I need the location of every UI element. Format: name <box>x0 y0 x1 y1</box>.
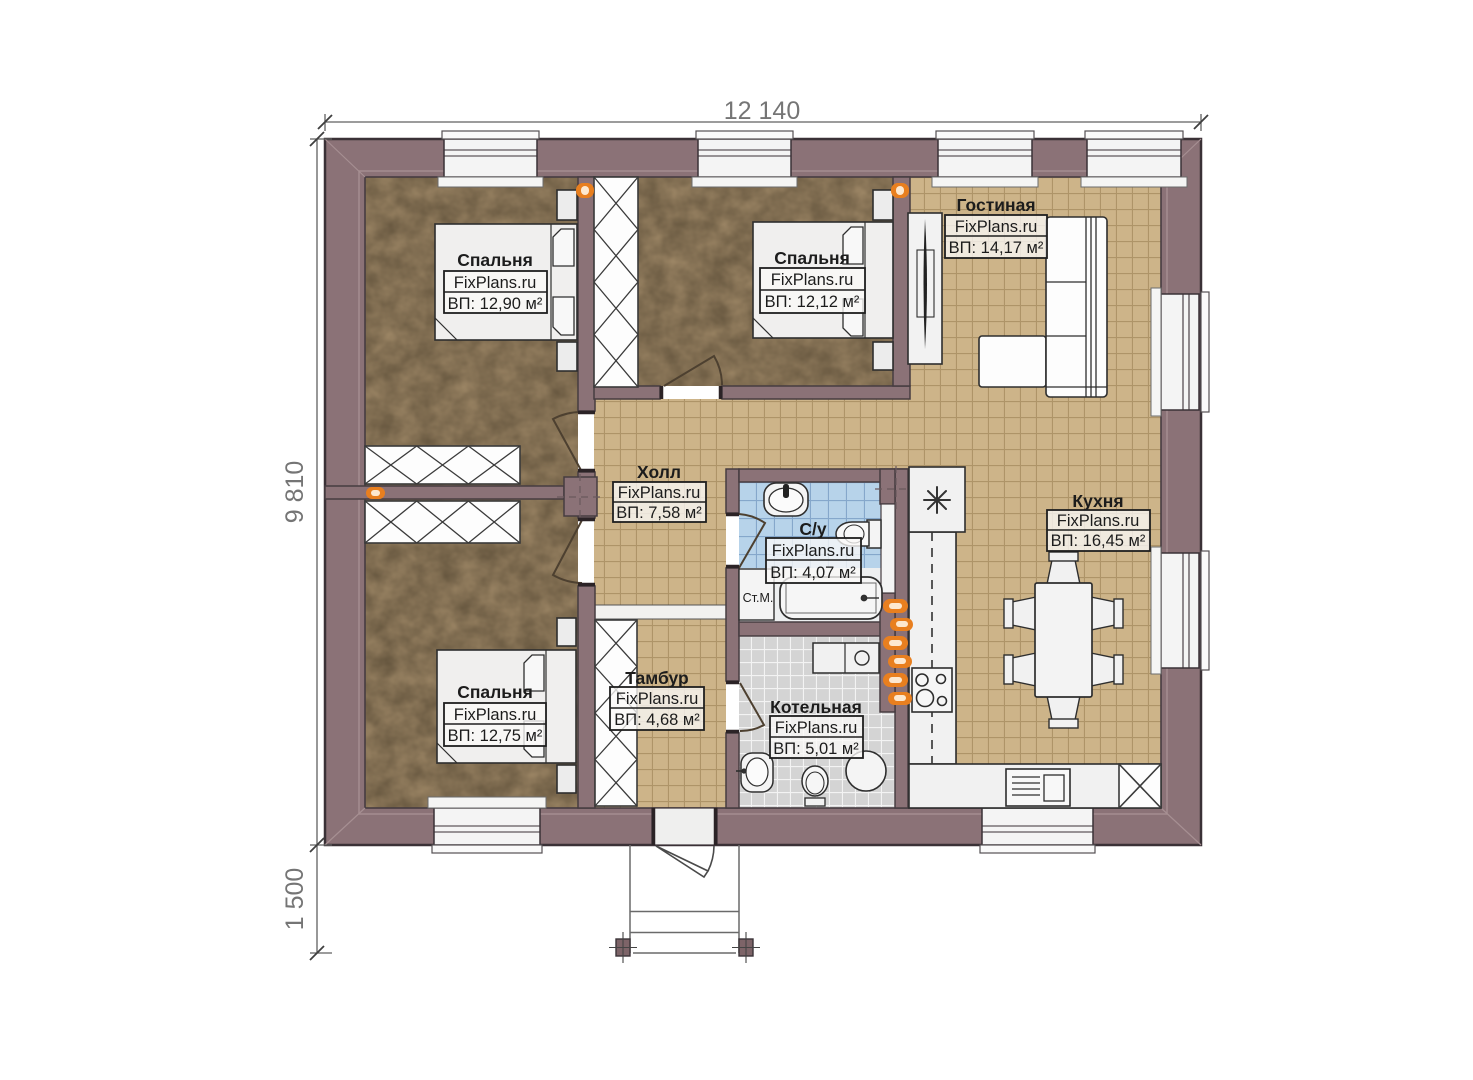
svg-text:9 810: 9 810 <box>281 461 309 524</box>
svg-text:FixPlans.ru: FixPlans.ru <box>1057 512 1140 530</box>
svg-text:Тамбур: Тамбур <box>625 668 688 688</box>
svg-text:ВП: 12,75 м²: ВП: 12,75 м² <box>448 727 543 745</box>
svg-text:Холл: Холл <box>637 462 681 482</box>
svg-text:Ст.М.: Ст.М. <box>743 591 774 605</box>
svg-text:С/у: С/у <box>799 519 827 539</box>
svg-text:Спальня: Спальня <box>457 682 533 702</box>
svg-text:ВП: 16,45 м²: ВП: 16,45 м² <box>1051 532 1146 550</box>
svg-text:ВП: 12,90 м²: ВП: 12,90 м² <box>448 295 543 313</box>
svg-text:FixPlans.ru: FixPlans.ru <box>616 690 699 708</box>
svg-text:FixPlans.ru: FixPlans.ru <box>775 719 858 737</box>
svg-text:Спальня: Спальня <box>774 248 850 268</box>
svg-text:Котельная: Котельная <box>770 697 862 717</box>
svg-text:FixPlans.ru: FixPlans.ru <box>454 706 537 724</box>
svg-text:ВП: 4,07 м²: ВП: 4,07 м² <box>770 564 856 582</box>
svg-text:Гостиная: Гостиная <box>956 195 1035 215</box>
svg-text:ВП: 14,17 м²: ВП: 14,17 м² <box>949 239 1044 257</box>
svg-text:FixPlans.ru: FixPlans.ru <box>955 218 1038 236</box>
svg-text:FixPlans.ru: FixPlans.ru <box>454 274 537 292</box>
svg-text:ВП: 7,58 м²: ВП: 7,58 м² <box>616 504 702 522</box>
svg-text:ВП: 4,68 м²: ВП: 4,68 м² <box>614 711 700 729</box>
svg-text:FixPlans.ru: FixPlans.ru <box>772 542 855 560</box>
svg-text:12 140: 12 140 <box>724 97 800 125</box>
svg-text:FixPlans.ru: FixPlans.ru <box>771 271 854 289</box>
svg-text:ВП: 5,01 м²: ВП: 5,01 м² <box>773 740 859 758</box>
svg-text:Спальня: Спальня <box>457 250 533 270</box>
svg-text:FixPlans.ru: FixPlans.ru <box>618 484 701 502</box>
svg-text:ВП: 12,12 м²: ВП: 12,12 м² <box>765 293 860 311</box>
svg-text:1 500: 1 500 <box>281 868 309 931</box>
svg-text:Кухня: Кухня <box>1072 491 1123 511</box>
